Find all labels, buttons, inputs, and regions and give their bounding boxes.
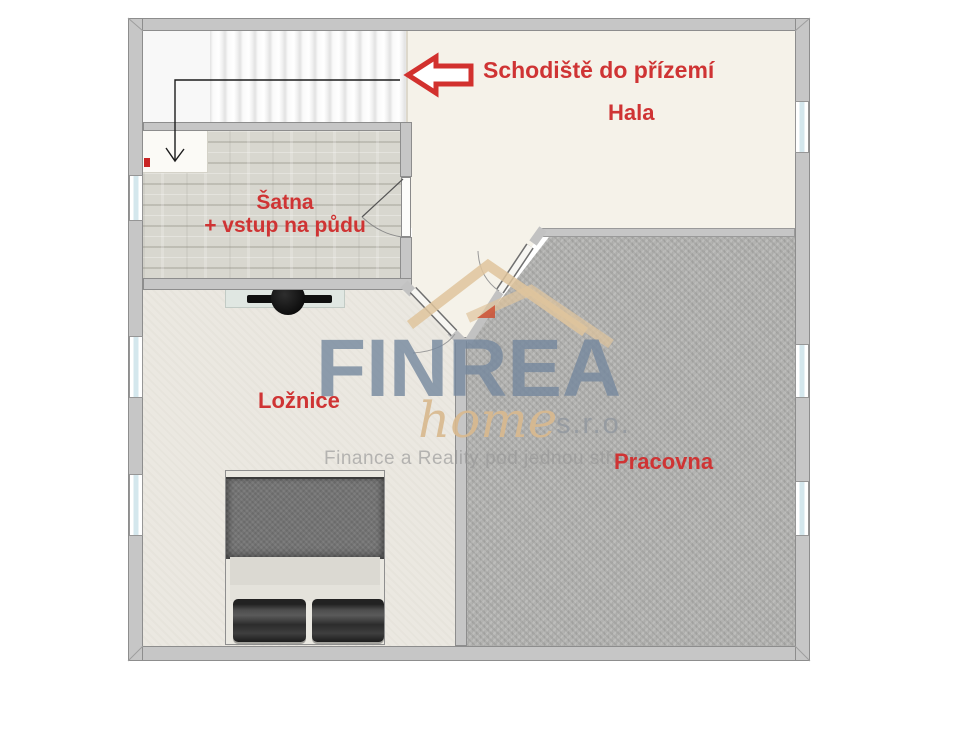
room-label-pracovna: Pracovna: [614, 449, 713, 475]
bed-pillow: [233, 599, 306, 642]
window: [129, 474, 143, 536]
window: [795, 481, 809, 536]
bed-sheet: [230, 557, 380, 586]
room-label-satna-line1: Šatna: [190, 191, 380, 214]
room-label-hala: Hala: [608, 100, 654, 126]
wall-hala-pracovna: [541, 228, 795, 237]
room-label-satna: Šatna + vstup na půdu: [190, 191, 380, 237]
attic-marker: [144, 158, 150, 167]
wall-loznice-pracovna: [455, 337, 467, 646]
window: [795, 101, 809, 153]
wall-bottom: [128, 646, 810, 661]
room-label-loznice: Ložnice: [258, 388, 340, 414]
window: [129, 336, 143, 398]
floor-plan: FINREA home s.r.o. Finance a Reality pod…: [0, 0, 975, 738]
wall-satna-right-upper: [400, 122, 412, 177]
window: [795, 344, 809, 398]
bed-duvet: [226, 477, 384, 559]
attic-landing: [143, 131, 208, 173]
room-label-satna-line2: + vstup na půdu: [190, 214, 380, 237]
wall-satna-loznice: [143, 278, 412, 290]
window: [129, 175, 143, 221]
bed: [225, 470, 385, 645]
satna-door-leaf: [401, 177, 411, 237]
stair-treads: [210, 31, 406, 122]
wall-top: [128, 18, 810, 31]
bed-pillow: [312, 599, 384, 642]
stair-note-label: Schodiště do přízemí: [483, 57, 714, 84]
wall-stairs-satna: [143, 122, 412, 131]
room-pracovna-floor: [460, 228, 795, 646]
